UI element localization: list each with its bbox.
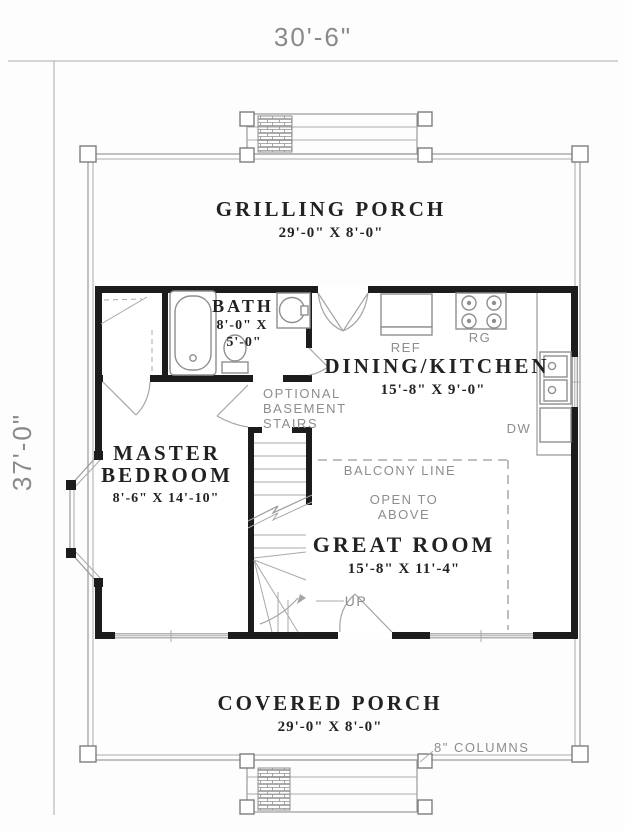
column [240,148,254,162]
floor-plan-drawing: 30'-6" 37'-0" [0,0,625,831]
column [80,746,96,762]
range-label: RG [469,330,492,345]
bath-label: BATH [212,296,274,316]
column [240,754,254,768]
refrigerator [381,294,432,335]
dimension-left: 37'-0" [7,61,54,815]
column [572,146,588,162]
overall-depth-label: 37'-0" [7,413,37,491]
master-bedroom-dims: 8'-6" X 14'-10" [113,491,220,506]
overall-width-label: 30'-6" [274,22,352,52]
column [80,146,96,162]
range [456,293,506,329]
master-bedroom-label-1: MASTER [113,441,221,465]
great-room-label: GREAT ROOM [313,532,496,557]
dishwasher-label: DW [507,421,532,436]
up-label: UP [345,593,367,609]
dimension-top: 30'-6" [8,22,618,61]
bath-dims-1: 8'-0" X [217,318,268,333]
columns-label: 8" COLUMNS [434,740,529,755]
covered-porch-dims: 29'-0" X 8'-0" [278,719,383,735]
top-steps [240,112,432,154]
dining-kitchen-dims: 15'-8" X 9'-0" [381,382,486,398]
brick-stoop [258,768,290,810]
master-bedroom-label-2: BEDROOM [101,463,233,487]
grilling-porch-label: GRILLING PORCH [216,197,446,221]
bath-sink [277,293,310,328]
column [418,754,432,768]
column [572,746,588,762]
floor-plan-page: 30'-6" 37'-0" [0,0,625,831]
bathtub [170,291,216,375]
brick-stoop [258,116,292,152]
bottom-steps [240,760,432,814]
dishwasher [540,408,571,442]
optional-basement-label-3: STAIRS [263,416,318,431]
dining-kitchen-label: DINING/KITCHEN [324,354,549,378]
optional-basement-label-2: BASEMENT [263,401,347,416]
great-room-dims: 15'-8" X 11'-4" [348,561,461,577]
refrigerator-label: REF [391,340,422,355]
bath-dims-2: 5'-0" [226,335,261,350]
grilling-porch-dims: 29'-0" X 8'-0" [279,225,384,241]
column [418,148,432,162]
open-to-above-label-1: OPEN TO [370,492,439,507]
optional-basement-label-1: OPTIONAL [263,386,341,401]
balcony-line-label: BALCONY LINE [344,463,456,478]
open-to-above-label-2: ABOVE [378,507,430,522]
covered-porch-label: COVERED PORCH [217,691,442,715]
